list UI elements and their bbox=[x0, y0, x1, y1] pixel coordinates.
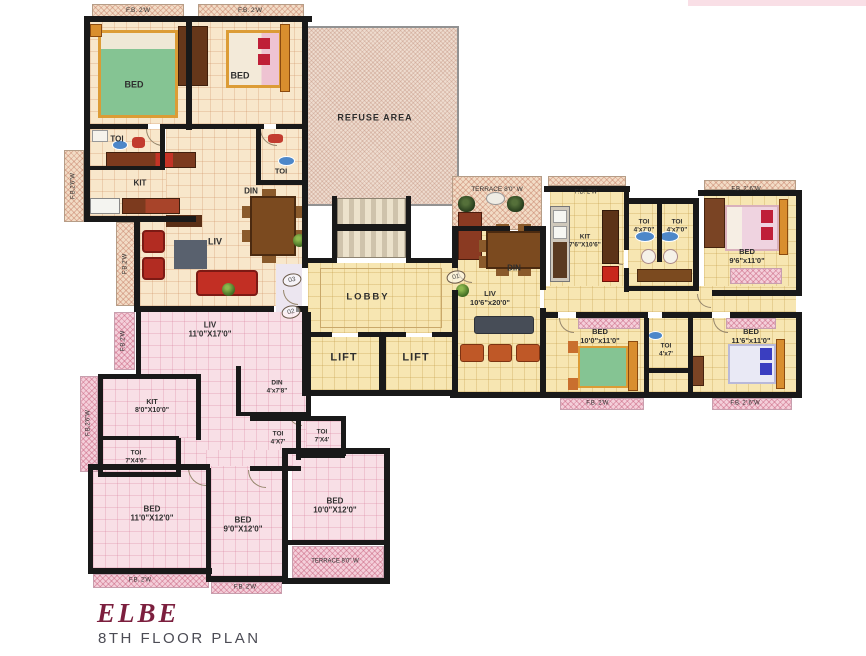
dining-chair bbox=[262, 189, 276, 196]
wall bbox=[452, 230, 458, 268]
wall bbox=[576, 312, 648, 318]
label-lift-1: LIFT bbox=[330, 352, 357, 365]
toilet-seat bbox=[132, 137, 145, 148]
kitchen-counter bbox=[553, 242, 567, 278]
label-fb-top-left-1: F.B. 2'W bbox=[126, 7, 150, 15]
wall bbox=[302, 16, 308, 268]
nightstand bbox=[568, 341, 578, 353]
wall bbox=[256, 180, 306, 185]
label-room-toi-pink-1: TOI 7'X4'6" bbox=[125, 449, 146, 464]
double-bed-green bbox=[578, 346, 628, 388]
wall bbox=[384, 448, 390, 584]
wall bbox=[88, 464, 93, 574]
wall bbox=[306, 312, 311, 416]
label-room-toi-top-left: TOI bbox=[110, 134, 123, 143]
label-room-toi-core: TOI bbox=[275, 168, 287, 177]
dining-table bbox=[250, 196, 296, 256]
headboard bbox=[779, 199, 788, 255]
label-room-din-right: DIN bbox=[507, 263, 521, 272]
wall bbox=[302, 258, 337, 263]
wall bbox=[305, 390, 458, 396]
label-room-kit-top-left: KIT bbox=[134, 178, 147, 187]
label-refuse-area: REFUSE AREA bbox=[337, 113, 412, 124]
plant-icon bbox=[222, 283, 235, 296]
wardrobe bbox=[178, 26, 208, 86]
washbasin bbox=[648, 331, 663, 340]
headboard bbox=[280, 24, 290, 92]
wall bbox=[540, 308, 546, 396]
wall bbox=[644, 318, 649, 396]
label-fb-left-strip-2: F.B.2'W bbox=[122, 254, 129, 274]
wall bbox=[406, 258, 456, 263]
headboard bbox=[628, 341, 638, 391]
wall bbox=[84, 166, 162, 170]
wall bbox=[644, 368, 693, 373]
plant-icon bbox=[458, 196, 475, 212]
dining-chair bbox=[242, 206, 250, 218]
label-room-toi-pink-2: TOI 4'X7' bbox=[271, 430, 286, 445]
headboard bbox=[776, 339, 785, 389]
label-room-toi-pink-3: TOI 7'X4' bbox=[315, 428, 330, 443]
wall bbox=[192, 124, 264, 129]
armchair bbox=[460, 344, 484, 362]
wall bbox=[540, 226, 546, 290]
label-fb-left-pink-1: F.B.2'6"W bbox=[85, 410, 92, 436]
label-fb-left-pink-2: F.B.2'W bbox=[120, 331, 127, 351]
armchair bbox=[488, 344, 512, 362]
wall bbox=[90, 464, 210, 470]
wall bbox=[452, 290, 458, 396]
wall bbox=[101, 374, 201, 379]
label-room-din-pink: DIN 4'x7'8" bbox=[267, 379, 288, 394]
pillow bbox=[761, 210, 773, 223]
wall bbox=[628, 198, 698, 204]
dining-chair bbox=[262, 256, 276, 263]
pillow bbox=[761, 227, 773, 240]
wall bbox=[450, 392, 546, 398]
label-room-liv-top-left: LIV bbox=[208, 237, 222, 248]
washbasin bbox=[278, 156, 295, 166]
wall bbox=[84, 16, 90, 222]
label-room-bed-pink-3: BED 10'0"X12'0" bbox=[313, 497, 356, 516]
wall bbox=[256, 128, 261, 184]
label-room-bed-top-right: BED 9'6"x11'0" bbox=[729, 248, 764, 266]
label-room-liv-right: LIV 10'6"x20'0" bbox=[470, 290, 510, 308]
label-room-bed-top-left: BED bbox=[124, 80, 143, 91]
toilet-seat bbox=[268, 134, 283, 143]
label-terrace-right: TERRACE 8'0" W bbox=[471, 186, 523, 194]
floor-plan-page: F.B. 2'WF.B. 2'WBEDBEDTOIKITDINLIVF.B.2'… bbox=[0, 0, 866, 656]
label-terrace-pink: TERRACE 8'0" W bbox=[311, 558, 359, 565]
dining-chair bbox=[479, 256, 486, 268]
terrace-table bbox=[486, 192, 505, 205]
wall bbox=[628, 286, 698, 291]
plant-icon bbox=[507, 196, 524, 212]
wall bbox=[282, 448, 288, 584]
wall bbox=[134, 216, 140, 312]
pillow bbox=[258, 38, 270, 49]
rug bbox=[174, 240, 207, 269]
bed-rug-strip bbox=[730, 268, 782, 284]
label-room-bed-far-right: BED 11'6"x11'0" bbox=[731, 328, 770, 346]
wall bbox=[206, 468, 211, 580]
pillow bbox=[760, 363, 772, 375]
wall bbox=[176, 438, 181, 477]
wall bbox=[688, 318, 693, 396]
label-room-toi-right-2: TOI 4'x7'0" bbox=[667, 218, 688, 233]
label-room-kit-pink: KIT 8'0"X10'0" bbox=[135, 399, 169, 416]
wall bbox=[136, 312, 141, 376]
kitchen-stove bbox=[90, 198, 120, 214]
wall bbox=[657, 204, 662, 262]
wall bbox=[160, 124, 165, 170]
wall bbox=[84, 216, 196, 222]
wall bbox=[379, 332, 386, 396]
wall bbox=[84, 124, 148, 129]
plan-title: 8TH FLOOR PLAN bbox=[98, 630, 261, 647]
label-fb-kit-right: F.B. 2'W bbox=[575, 189, 597, 196]
dining-chair bbox=[242, 230, 250, 242]
wall bbox=[98, 472, 180, 477]
wall bbox=[796, 312, 802, 398]
toilet-seat bbox=[663, 249, 678, 264]
label-fb-top-right: F.B. 2'.6"W bbox=[731, 186, 760, 193]
kitchen-counter bbox=[122, 198, 180, 214]
wall bbox=[662, 312, 712, 318]
wall bbox=[101, 436, 179, 440]
label-room-bed-pink-2: BED 9'0"X12'0" bbox=[224, 516, 263, 535]
wall bbox=[406, 196, 411, 260]
toilet-seat bbox=[641, 249, 656, 264]
dining-chair bbox=[479, 240, 486, 252]
label-fb-bottom-mid-2: F.B. 2'.6"W bbox=[730, 400, 759, 407]
label-fb-top-left-2: F.B. 2'W bbox=[238, 7, 262, 15]
wall bbox=[98, 374, 103, 476]
wall bbox=[452, 226, 510, 231]
pillow bbox=[760, 348, 772, 360]
label-lobby: LOBBY bbox=[346, 291, 389, 302]
pillow bbox=[258, 54, 270, 65]
wall bbox=[730, 312, 802, 318]
label-room-toi-mid-right: TOI 4'x7' bbox=[659, 342, 673, 357]
wall bbox=[286, 448, 388, 454]
tall-cabinet bbox=[458, 212, 482, 260]
label-fb-bottom-mid-1: F.B. 2'W. bbox=[586, 400, 609, 407]
wall bbox=[162, 124, 188, 129]
label-fb-bottom-pink-1: F.B. 2'W bbox=[129, 577, 151, 584]
label-room-din-top-left: DIN bbox=[244, 186, 258, 195]
label-room-bed-mid-right: BED 10'0"x11'0" bbox=[580, 328, 619, 346]
vanity-counter bbox=[637, 269, 692, 282]
wall bbox=[84, 16, 312, 22]
wall bbox=[693, 198, 699, 291]
label-room-kit-right: KIT 7'6"X10'6" bbox=[569, 233, 601, 248]
wall bbox=[134, 306, 274, 312]
brand-logo: ELBE bbox=[97, 598, 180, 629]
label-fb-bottom-pink-2: F.B. 2'W bbox=[234, 584, 256, 591]
wall bbox=[196, 378, 201, 440]
flower-bed-strip bbox=[548, 176, 626, 186]
wall bbox=[236, 366, 241, 416]
label-lift-2: LIFT bbox=[402, 352, 429, 365]
wall bbox=[88, 568, 212, 574]
wall bbox=[544, 312, 558, 318]
bathtub bbox=[92, 130, 108, 142]
sofa-dark bbox=[474, 316, 534, 334]
armchair bbox=[142, 257, 165, 280]
wall bbox=[544, 392, 802, 398]
wall bbox=[286, 540, 386, 545]
armchair bbox=[142, 230, 165, 253]
label-room-toi-right-1: TOI 4'x7'0" bbox=[634, 218, 655, 233]
wall bbox=[186, 16, 192, 130]
kitchen-sink bbox=[553, 210, 567, 223]
wall bbox=[796, 190, 802, 296]
kitchen-stove bbox=[553, 226, 567, 239]
double-bed-green bbox=[98, 30, 178, 118]
tall-cabinet bbox=[602, 210, 619, 264]
wall bbox=[712, 290, 802, 296]
armchair bbox=[516, 344, 540, 362]
label-room-liv-pink: LIV 11'0"X17'0" bbox=[189, 321, 232, 340]
label-fb-left-strip-1: F.B.2'6"W bbox=[70, 173, 77, 199]
floor-plan-canvas: F.B. 2'WF.B. 2'WBEDBEDTOIKITDINLIVF.B.2'… bbox=[0, 0, 866, 592]
wall bbox=[206, 576, 288, 582]
nightstand bbox=[90, 24, 102, 37]
wardrobe bbox=[704, 198, 725, 248]
wall bbox=[286, 578, 390, 584]
stair-landing bbox=[337, 224, 406, 231]
nightstand bbox=[568, 378, 578, 390]
wall bbox=[298, 454, 345, 458]
wall bbox=[250, 466, 301, 471]
fridge bbox=[602, 266, 619, 282]
label-room-bed-top-mid: BED bbox=[230, 71, 249, 82]
label-room-bed-pink-1: BED 11'0"X12'0" bbox=[131, 505, 174, 524]
